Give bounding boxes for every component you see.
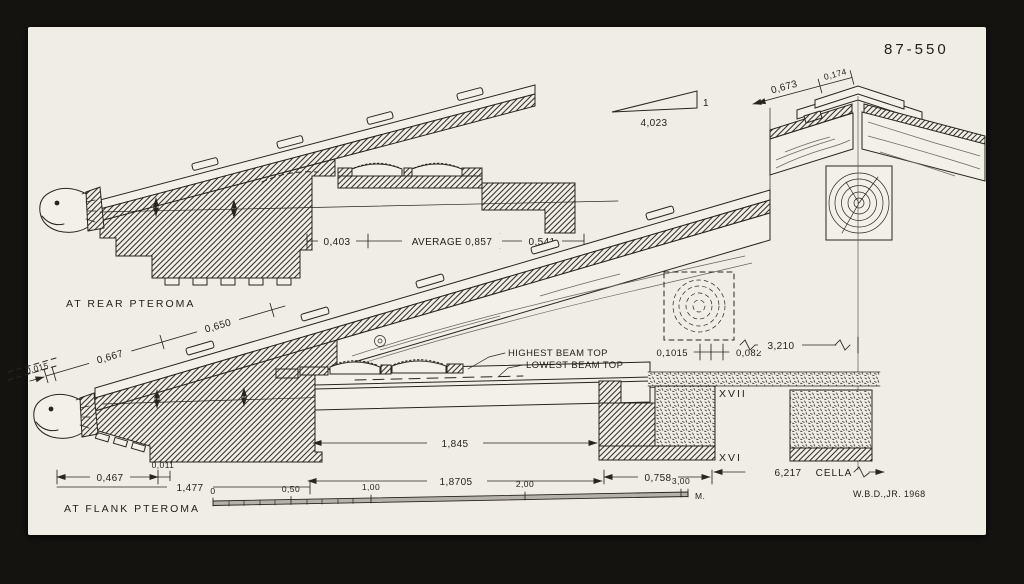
dim-geison: 1,477	[176, 483, 203, 494]
photo-background: 87-550	[0, 0, 1024, 584]
scale-tick-05: 0,50	[282, 484, 300, 494]
drawing-canvas: 87-550	[0, 0, 1024, 584]
dim-beam-a: 0,1015	[657, 348, 688, 359]
lowest-beam-label: LOWEST BEAM TOP	[526, 360, 623, 371]
slope-run: 4,023	[640, 118, 667, 129]
dim-wall: 0,758	[644, 473, 671, 484]
course-xvii-label: XVII	[719, 388, 747, 400]
highest-beam-label: HIGHEST BEAM TOP	[508, 348, 608, 359]
dim-clear-span: 1,845	[441, 439, 468, 450]
drawing-number: 87-550	[884, 41, 949, 58]
scale-tick-0: 0	[210, 486, 215, 496]
dim-beam-span: 1,8705	[440, 477, 473, 488]
slope-rise: 1	[703, 98, 709, 109]
dim-ridge-span: 3,210	[767, 341, 794, 352]
signature: W.B.D.,JR. 1968	[853, 489, 926, 499]
lion-head-spout-flank	[34, 393, 98, 438]
right-wall-block	[599, 381, 621, 403]
rubble-band	[648, 372, 880, 386]
scale-tick-1: 1,00	[362, 482, 380, 492]
rear-section-label: AT REAR PTEROMA	[66, 298, 195, 310]
dim-cella-span: 6,217	[774, 468, 801, 479]
cella-label: CELLA	[816, 468, 853, 479]
rear-cornice-band	[338, 176, 482, 188]
dim-rear-average: AVERAGE 0,857	[412, 237, 493, 248]
dim-rear-a: 0,403	[323, 237, 350, 248]
flank-section-label: AT FLANK PTEROMA	[64, 503, 200, 515]
scale-tick-2: 2,00	[516, 479, 534, 489]
cella-wall-footing	[790, 448, 872, 461]
dim-joint: 0,011	[152, 460, 175, 470]
wall-course-xvi	[599, 446, 715, 460]
dim-overhang: 0,467	[96, 473, 123, 484]
scale-tick-3: 3,00	[672, 476, 690, 486]
lion-head-spout-rear	[40, 187, 104, 232]
right-wall-block	[599, 403, 655, 446]
cella-wall	[790, 390, 872, 448]
scale-unit: M.	[695, 491, 705, 501]
course-xvi-label: XVI	[719, 452, 742, 464]
dim-beam-b: 0,082	[736, 348, 762, 359]
wall-course-xvii	[655, 386, 715, 446]
